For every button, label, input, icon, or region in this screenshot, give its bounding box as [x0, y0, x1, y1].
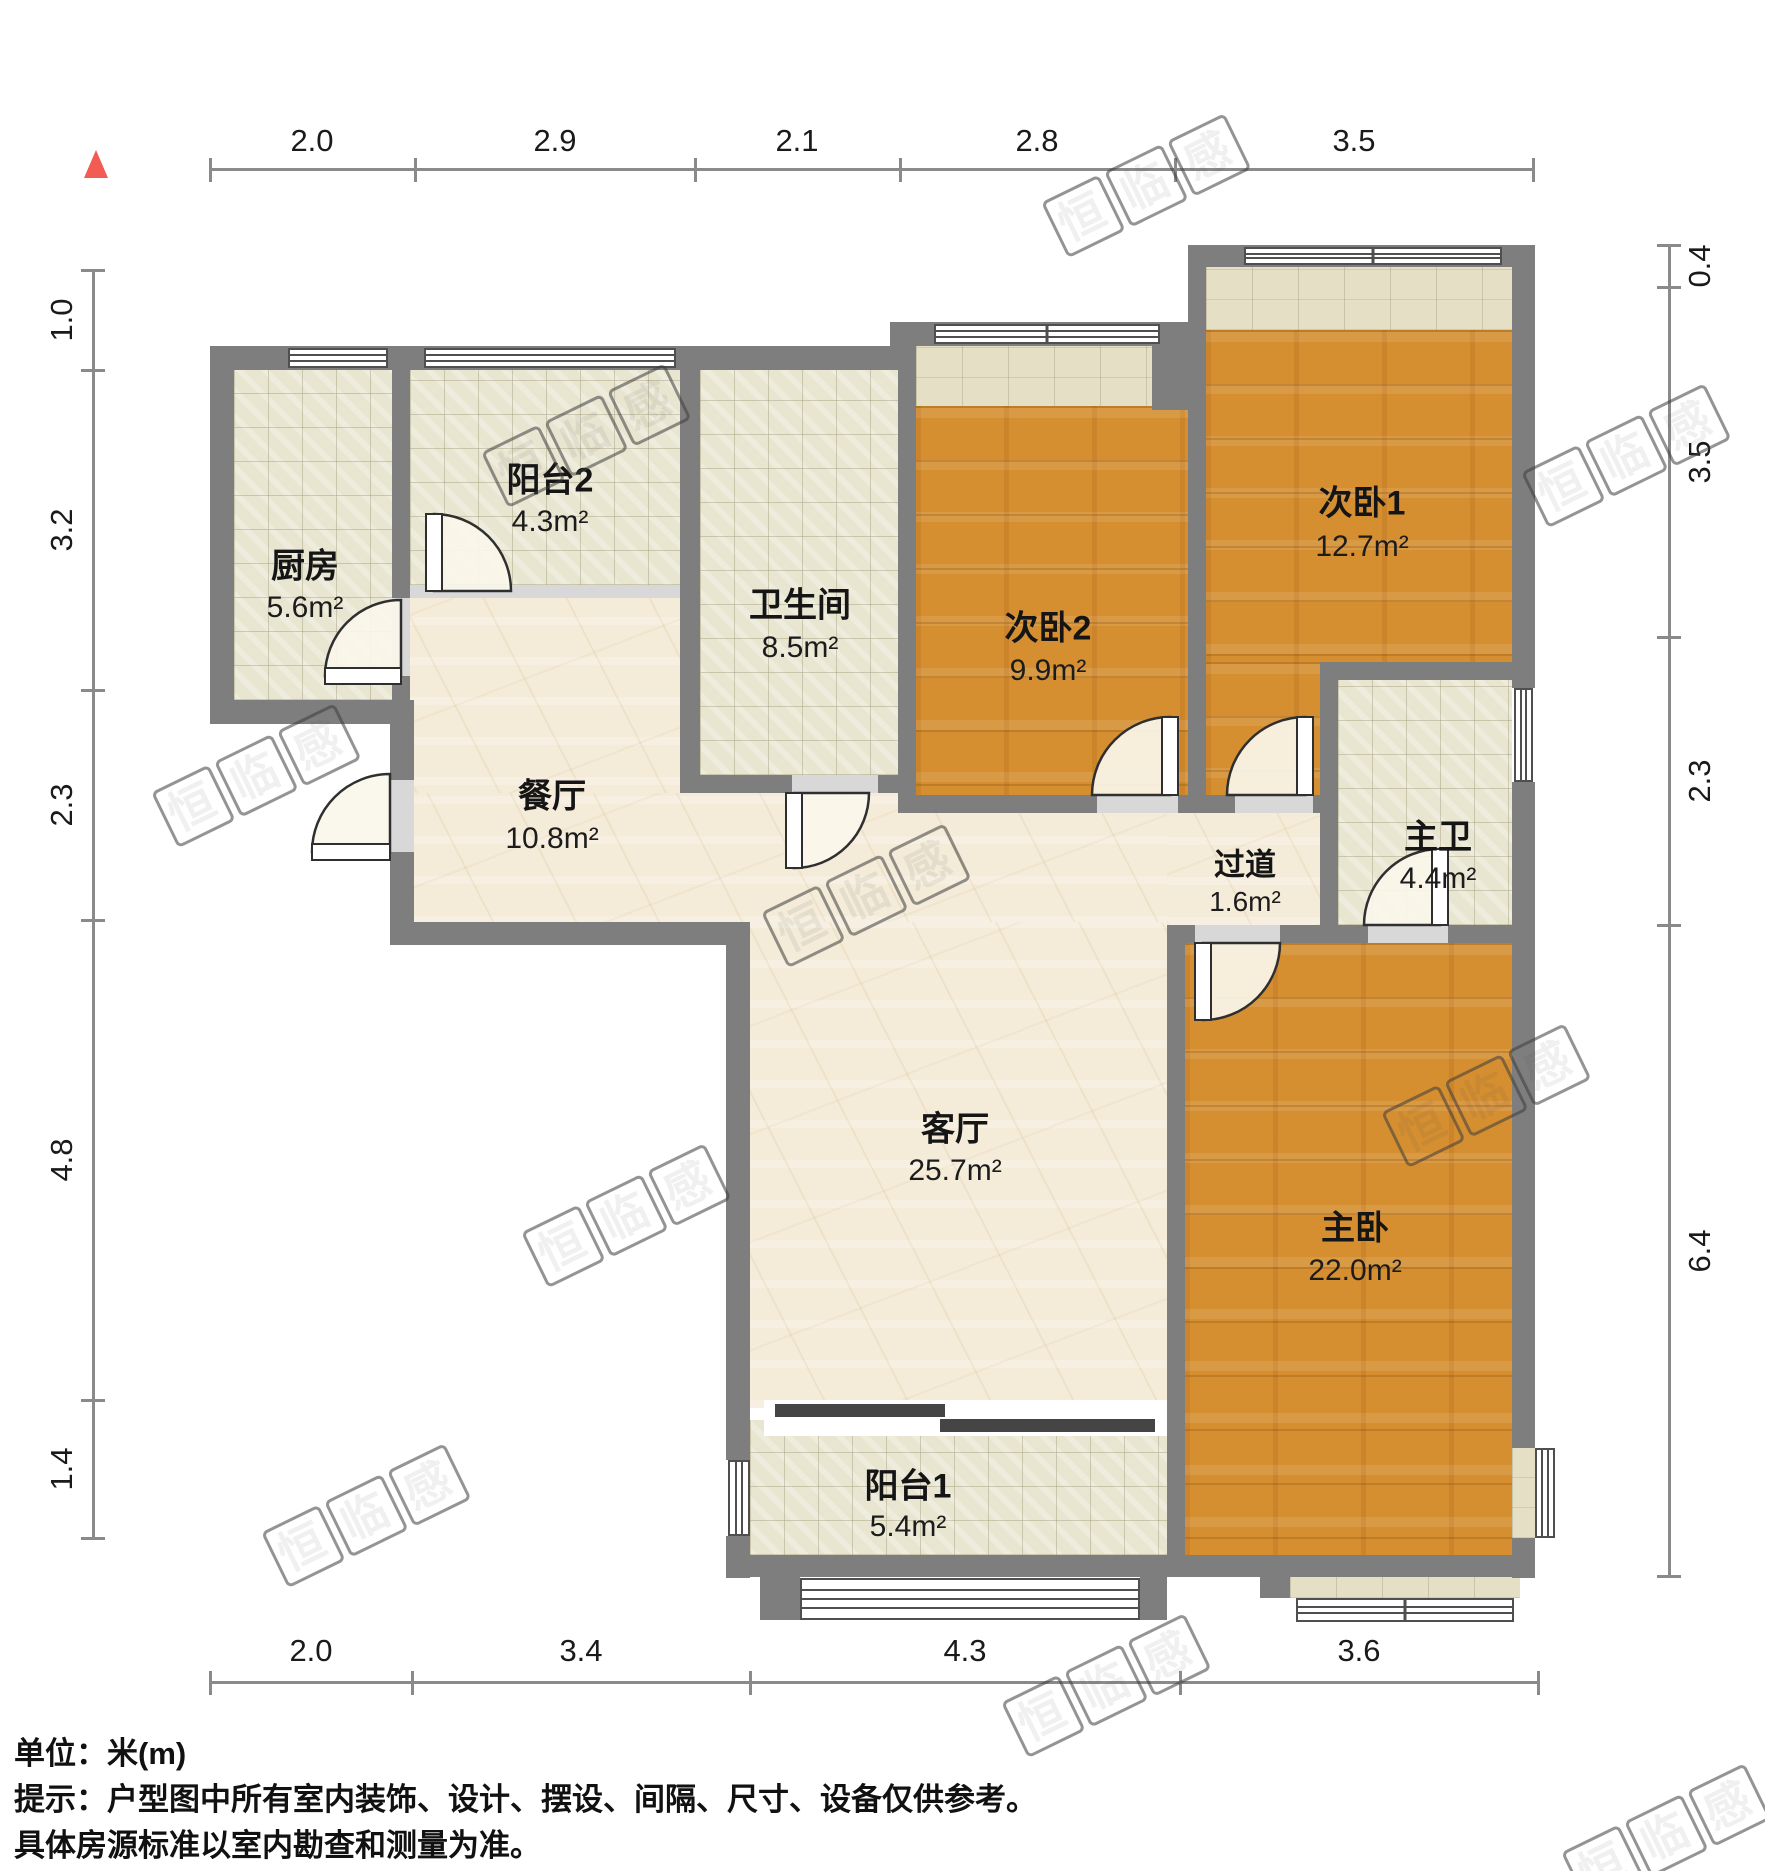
dim-tick	[1657, 924, 1681, 927]
dim-tick	[81, 1399, 105, 1402]
dim-right-1: 0.4	[1682, 244, 1718, 287]
dim-top-4: 2.8	[1015, 123, 1058, 159]
masterbath-label: 主卫	[1404, 810, 1472, 859]
kitchen-area: 5.6m²	[267, 591, 344, 625]
bedroom2-door-leaf	[1162, 717, 1178, 795]
kitchen-door-leaf	[325, 668, 401, 684]
bathroom-area: 8.5m²	[762, 631, 839, 665]
dim-tick	[81, 1537, 105, 1540]
dim-tick	[81, 269, 105, 272]
dim-top-5: 3.5	[1332, 123, 1375, 159]
footer-notice-2: 具体房源标准以室内勘查和测量为准。	[14, 1820, 541, 1865]
bedroom2-label: 次卧2	[1005, 601, 1092, 650]
north-arrow-icon	[84, 150, 108, 178]
balcony2-door-leaf	[426, 514, 442, 591]
dim-tick	[411, 1671, 414, 1695]
dim-tick	[899, 158, 902, 182]
dim-tick	[209, 158, 212, 182]
door-symbols	[0, 0, 1765, 1871]
hallway-label: 过道	[1214, 840, 1276, 885]
dining-area: 10.8m²	[505, 822, 598, 856]
dim-line-top	[210, 168, 1535, 171]
bedroom1-door-arc	[1227, 717, 1305, 795]
masterbedroom-area: 22.0m²	[1308, 1254, 1401, 1288]
dim-left-5: 1.4	[44, 1447, 80, 1490]
dim-right-4: 6.4	[1682, 1229, 1718, 1272]
dim-tick	[414, 158, 417, 182]
dim-top-1: 2.0	[290, 123, 333, 159]
dim-tick	[1657, 286, 1681, 289]
dim-tick	[81, 689, 105, 692]
bedroom2-door-arc	[1092, 717, 1170, 795]
bathroom-door-leaf	[786, 793, 802, 868]
balcony2-area: 4.3m²	[512, 505, 589, 539]
dim-bottom-1: 2.0	[289, 1633, 332, 1669]
footer-notice-1: 提示：户型图中所有室内装饰、设计、摆设、间隔、尺寸、设备仅供参考。	[14, 1774, 1037, 1819]
hallway-area: 1.6m²	[1209, 886, 1281, 918]
dim-tick	[81, 919, 105, 922]
dim-tick	[1532, 158, 1535, 182]
dim-right-3: 2.3	[1682, 759, 1718, 802]
dim-bottom-2: 3.4	[559, 1633, 602, 1669]
dim-left-2: 3.2	[44, 508, 80, 551]
dining-label: 餐厅	[518, 769, 586, 818]
masterbedroom-door-leaf	[1195, 943, 1211, 1020]
dim-top-3: 2.1	[775, 123, 818, 159]
living-label: 客厅	[921, 1102, 989, 1151]
masterbath-area: 4.4m²	[1400, 862, 1477, 896]
masterbedroom-door-arc	[1203, 943, 1280, 1020]
kitchen-label: 厨房	[271, 539, 339, 588]
footer-unit: 单位：米(m)	[14, 1728, 186, 1773]
dim-left-3: 2.3	[44, 783, 80, 826]
entry-door-leaf	[312, 844, 390, 860]
dim-bottom-3: 4.3	[943, 1633, 986, 1669]
balcony1-area: 5.4m²	[870, 1510, 947, 1544]
floorplan-canvas: 厨房 5.6m² 阳台2 4.3m² 卫生间 8.5m² 次卧2 9.9m² 次…	[0, 0, 1765, 1871]
living-area: 25.7m²	[908, 1154, 1001, 1188]
balcony1-label: 阳台1	[865, 1459, 952, 1508]
dim-tick	[1657, 244, 1681, 247]
dim-line-bottom	[210, 1681, 1538, 1684]
dim-line-left	[92, 270, 95, 1538]
bedroom2-area: 9.9m²	[1010, 654, 1087, 688]
dim-left-1: 1.0	[44, 298, 80, 341]
bedroom1-area: 12.7m²	[1315, 530, 1408, 564]
dim-bottom-4: 3.6	[1337, 1633, 1380, 1669]
bathroom-door-arc	[794, 793, 869, 868]
entry-door-arc	[312, 774, 390, 852]
bathroom-label: 卫生间	[749, 578, 851, 627]
dim-tick	[749, 1671, 752, 1695]
dim-tick	[1537, 1671, 1540, 1695]
dim-tick	[1657, 636, 1681, 639]
dim-tick	[1657, 1575, 1681, 1578]
dim-tick	[209, 1671, 212, 1695]
dim-top-2: 2.9	[533, 123, 576, 159]
bedroom1-door-leaf	[1297, 717, 1313, 795]
masterbedroom-label: 主卧	[1321, 1201, 1389, 1250]
dim-left-4: 4.8	[44, 1138, 80, 1181]
dim-tick	[81, 369, 105, 372]
balcony2-door-arc	[434, 514, 511, 591]
dim-tick	[694, 158, 697, 182]
bedroom1-label: 次卧1	[1319, 476, 1406, 525]
